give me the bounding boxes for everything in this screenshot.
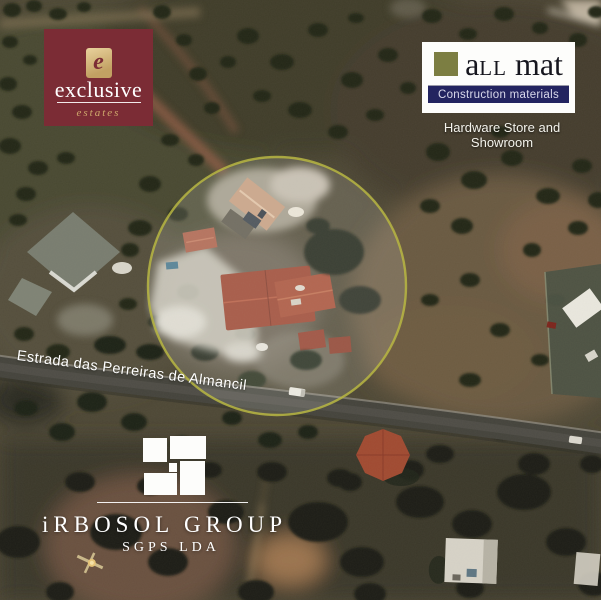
- irbosol-square: [144, 473, 177, 495]
- all-mat-tagline: Construction materials: [438, 89, 559, 101]
- irbosol-square: [180, 461, 205, 495]
- exclusive-divider: [57, 102, 141, 103]
- all-mat-brand-row: a LL mat: [434, 47, 563, 81]
- emblem-letter: e: [93, 50, 104, 74]
- all-mat-subtitle: Hardware Store and Showroom: [412, 120, 592, 150]
- exclusive-subname: estates: [77, 107, 121, 119]
- brand-part-a: a: [465, 48, 479, 80]
- all-mat-square-icon: [434, 52, 458, 76]
- irbosol-squares-icon: [143, 435, 207, 497]
- brand-part-ll: LL: [479, 58, 507, 79]
- irbosol-square: [143, 438, 167, 462]
- all-mat-tagline-bar: Construction materials: [428, 85, 569, 103]
- exclusive-wordmark: exclusive: [55, 78, 143, 101]
- irbosol-subname: SGPS LDA: [42, 540, 300, 556]
- brand-part-mat: mat: [515, 48, 563, 80]
- exclusive-estates-logo: e exclusive estates: [44, 29, 153, 126]
- all-mat-wordmark: a LL mat: [465, 48, 563, 80]
- all-mat-logo: a LL mat Construction materials: [422, 42, 575, 113]
- irbosol-square: [169, 463, 177, 472]
- irbosol-divider: [97, 502, 248, 503]
- irbosol-wordmark: iRBOSOL GROUP: [42, 512, 300, 538]
- irbosol-group-logo: iRBOSOL GROUP SGPS LDA: [42, 435, 300, 556]
- exclusive-emblem-icon: e: [86, 48, 112, 78]
- aerial-map-canvas: Estrada das Perreiras de Almancil e excl…: [0, 0, 601, 600]
- irbosol-square: [170, 436, 206, 459]
